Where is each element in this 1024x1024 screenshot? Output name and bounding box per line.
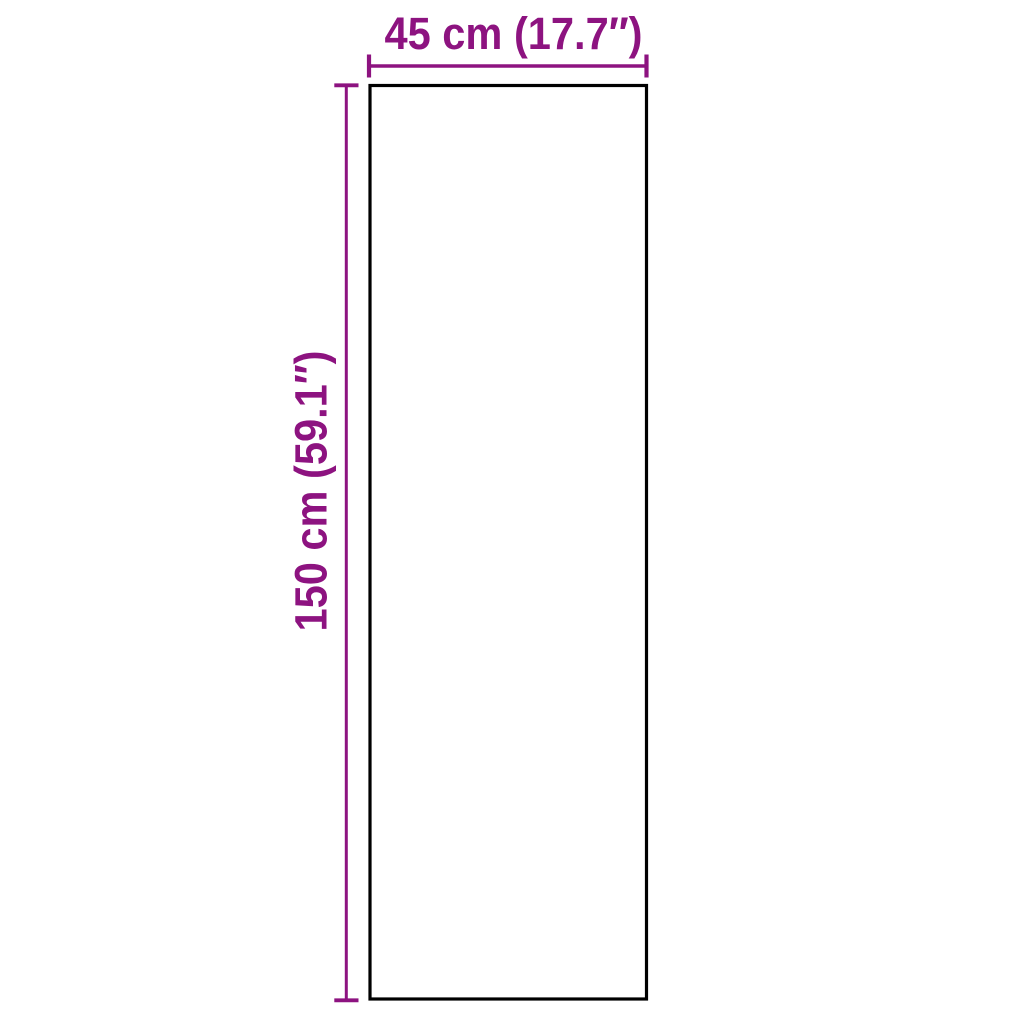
svg-text:150 cm (59.1″): 150 cm (59.1″) (286, 351, 337, 632)
svg-text:45 cm (17.7″): 45 cm (17.7″) (385, 8, 643, 59)
